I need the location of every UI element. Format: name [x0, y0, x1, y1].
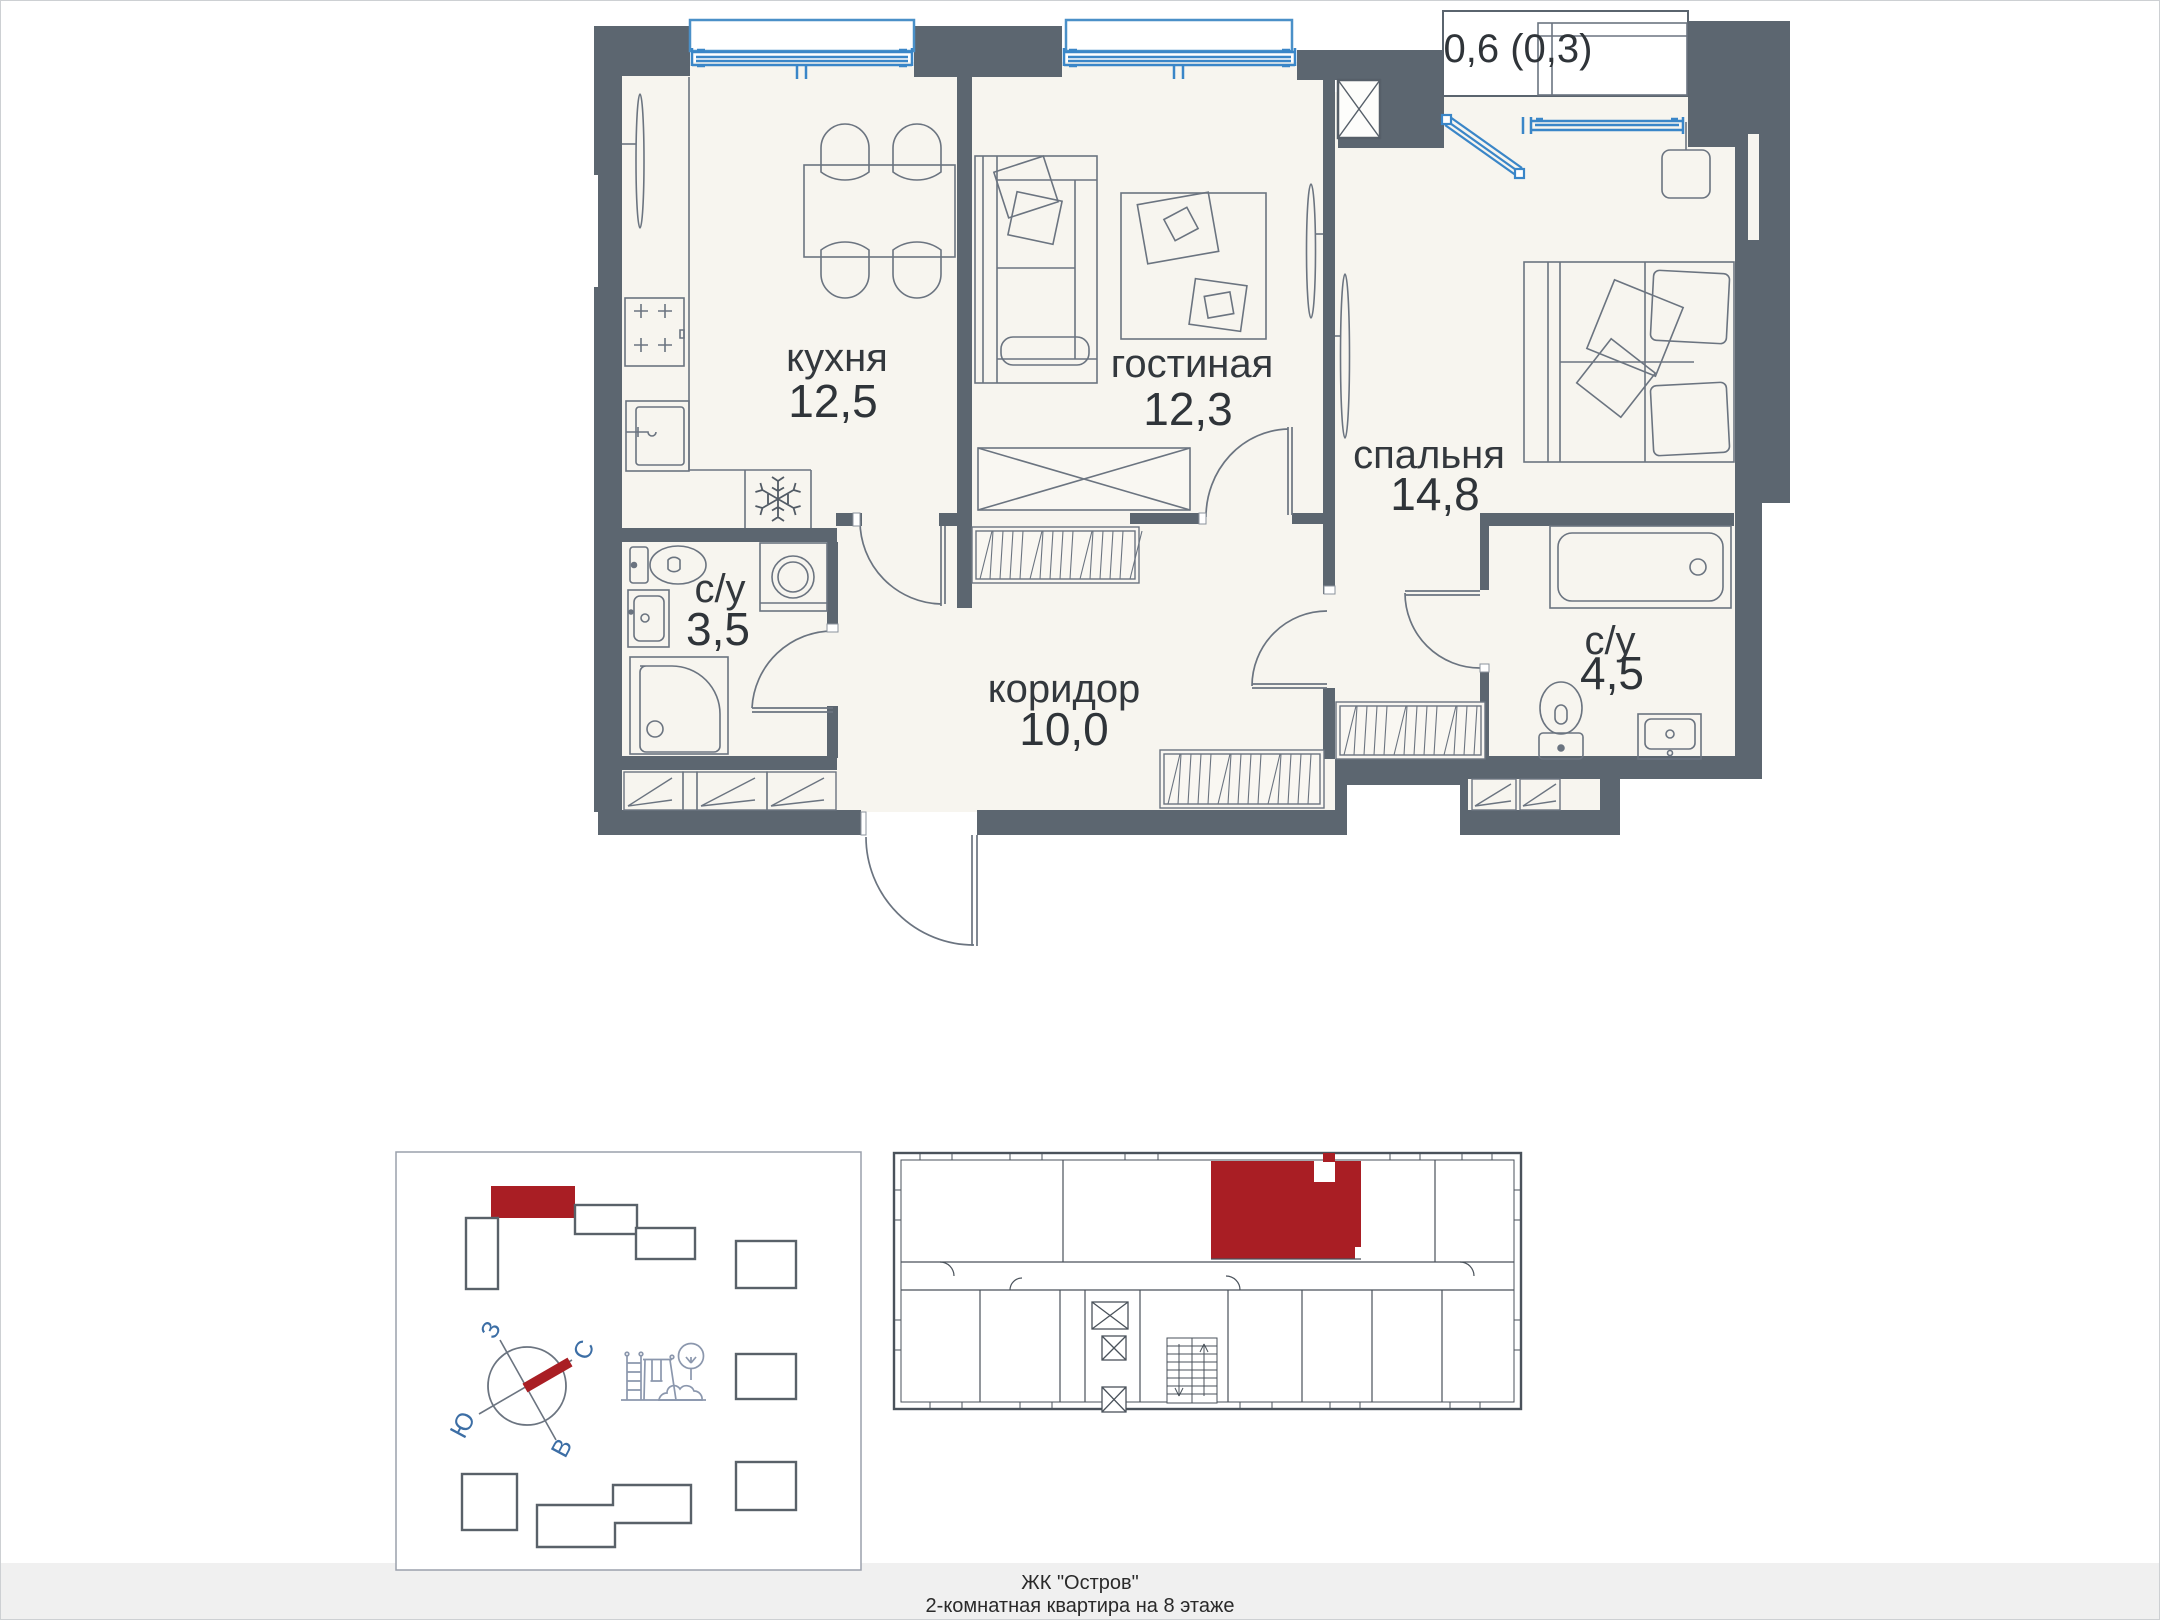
svg-text:14,8: 14,8 — [1390, 468, 1480, 520]
svg-text:гостиная: гостиная — [1111, 342, 1274, 386]
svg-text:10,0: 10,0 — [1019, 703, 1109, 755]
svg-text:кухня: кухня — [786, 336, 888, 380]
svg-text:12,3: 12,3 — [1143, 383, 1233, 435]
svg-text:12,5: 12,5 — [788, 375, 878, 427]
svg-text:0,6 (0,3): 0,6 (0,3) — [1444, 27, 1593, 71]
svg-text:3,5: 3,5 — [686, 603, 750, 655]
svg-text:2-комнатная квартира на 8 этаж: 2-комнатная квартира на 8 этаже — [926, 1595, 1235, 1617]
svg-text:ЖК "Остров": ЖК "Остров" — [1021, 1572, 1138, 1594]
svg-text:4,5: 4,5 — [1580, 647, 1644, 699]
